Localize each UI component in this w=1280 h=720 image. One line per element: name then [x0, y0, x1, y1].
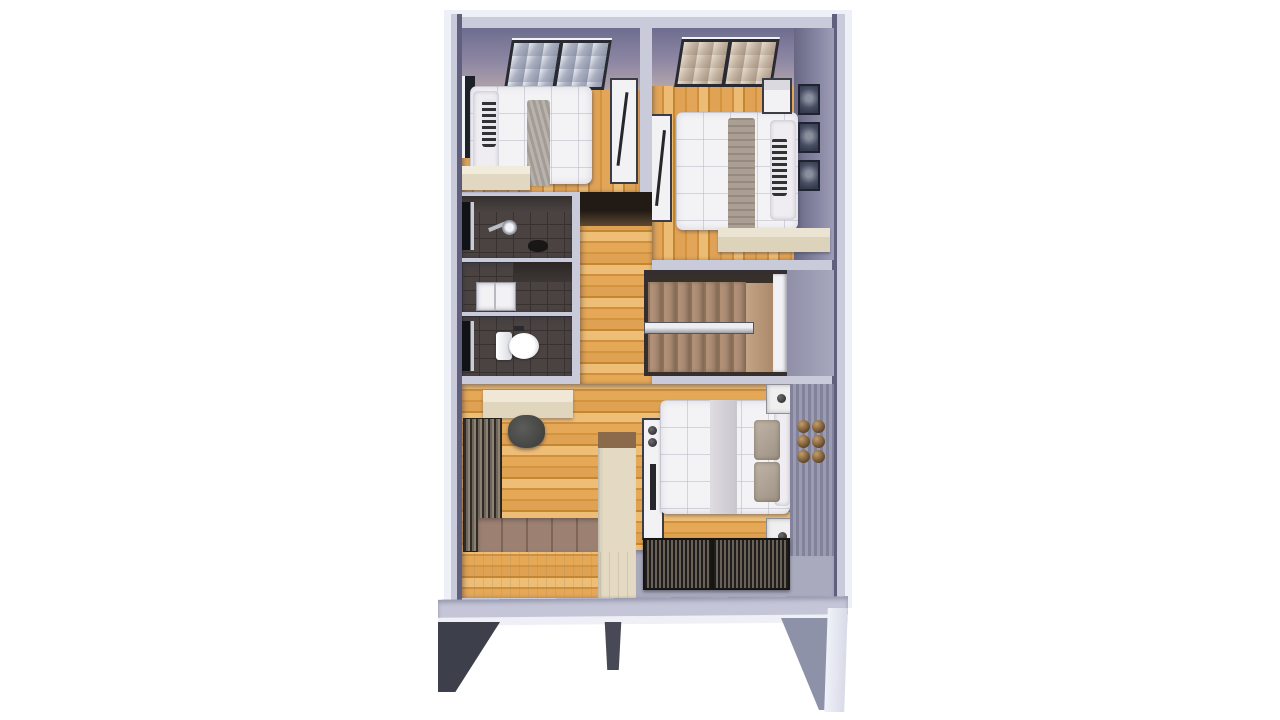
skylight-pane — [556, 43, 608, 87]
striped-accent-pillow — [772, 138, 787, 196]
cabinet-cap — [598, 432, 636, 448]
washbasin-area — [462, 262, 572, 312]
plaid-throw-blanket — [728, 118, 755, 230]
tv-screen — [650, 464, 656, 510]
frame — [798, 160, 820, 191]
slatted-bench — [712, 538, 790, 590]
tv-panel — [652, 114, 672, 222]
toilet-door — [462, 321, 474, 371]
outer-wall-left — [448, 14, 462, 604]
plate — [797, 420, 810, 433]
shower-door — [462, 202, 474, 250]
double-bed — [676, 112, 798, 230]
vanity-door-split — [494, 283, 496, 310]
slatted-bench — [643, 538, 712, 590]
speaker-knob — [648, 426, 657, 435]
right-support-wall — [780, 618, 830, 710]
master-bedroom — [462, 384, 834, 598]
toilet-bowl — [509, 333, 539, 359]
bronze-wall-plates — [797, 420, 827, 463]
handrail — [644, 322, 754, 334]
tv-screen — [655, 130, 666, 206]
textured-wall-panel — [790, 384, 834, 556]
desk-cabinet — [718, 228, 830, 252]
center-post — [604, 622, 622, 670]
shower-head — [502, 220, 517, 235]
counter-top — [514, 262, 572, 282]
bedroom-left — [462, 28, 640, 192]
cabinet-bottom — [466, 552, 636, 598]
desk-chair — [508, 415, 545, 448]
floor-plan-render — [0, 0, 1280, 720]
plate — [797, 450, 810, 463]
tv-wardrobe — [610, 78, 638, 184]
hallway — [580, 192, 652, 384]
plate — [797, 435, 810, 448]
skylight-pane — [507, 43, 559, 87]
shower-room — [462, 196, 572, 258]
plate — [812, 450, 825, 463]
skylight-window — [504, 38, 612, 90]
bed-runner — [710, 400, 737, 514]
floor-drain — [528, 240, 548, 252]
outer-wall-right — [832, 14, 848, 604]
headboard-shelf — [762, 78, 792, 114]
flush-button — [514, 326, 524, 331]
tv-screen — [617, 92, 629, 166]
bedroom-right — [652, 28, 834, 260]
stair-baluster — [773, 274, 787, 372]
deck-step — [478, 518, 602, 552]
dresser — [462, 166, 530, 190]
frame — [798, 84, 820, 115]
right-wall-face — [794, 28, 834, 260]
skylight-pane — [678, 42, 729, 84]
upper-floor-plan — [448, 14, 848, 604]
taupe-pillow — [754, 462, 780, 502]
picture-frames — [798, 84, 820, 191]
master-bed — [660, 400, 790, 514]
toilet-room — [462, 316, 572, 376]
wall-shadow — [462, 196, 572, 212]
desk — [483, 390, 573, 418]
table-lamp — [777, 394, 786, 403]
striped-accent-pillow — [482, 99, 496, 147]
stairwell-wall — [787, 270, 834, 376]
left-support-wall — [438, 622, 500, 692]
right-support-edge — [824, 608, 848, 712]
frame — [798, 122, 820, 153]
outer-wall-top — [448, 14, 848, 28]
knit-throw-blanket — [527, 100, 550, 186]
taupe-pillow — [754, 420, 780, 460]
doorway-threshold — [580, 192, 652, 226]
stairwell — [644, 270, 834, 376]
plate — [812, 435, 825, 448]
vanity-cabinet — [476, 282, 516, 311]
speaker-knob — [648, 438, 657, 447]
plate — [812, 420, 825, 433]
